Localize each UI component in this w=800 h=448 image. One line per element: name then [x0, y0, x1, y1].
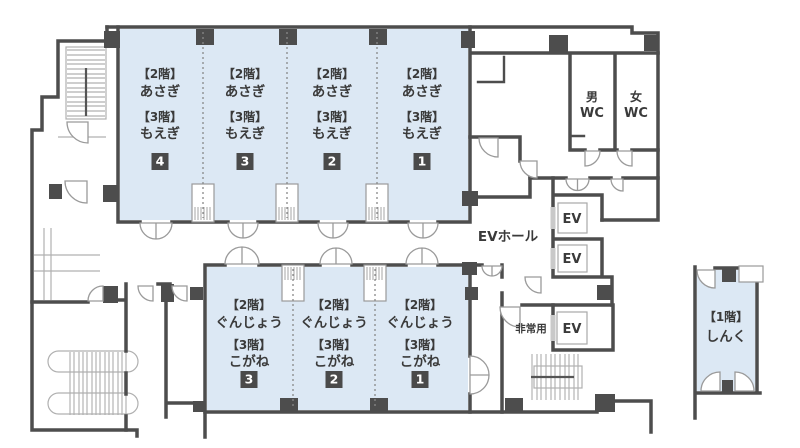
elevator-2-label: EV: [563, 252, 582, 267]
mens-wc-gender-label: 男: [586, 90, 598, 104]
floor2-room-name: あさぎ: [402, 83, 443, 100]
room-number: 3: [241, 154, 250, 169]
emergency-elevator-label: EV: [563, 322, 582, 337]
floor2-room-name: ぐんじょう: [386, 315, 454, 331]
floor2-label: 【2階】: [138, 66, 182, 81]
floor2-room-name: あさぎ: [140, 83, 181, 100]
floor2-label: 【2階】: [227, 297, 271, 312]
room-number: 1: [416, 372, 425, 387]
floor3-label: 【3階】: [400, 109, 444, 124]
floor3-room-name: もえぎ: [312, 125, 353, 142]
elevator-2-door: [551, 248, 556, 269]
ev-hall-label: EVホール: [478, 229, 539, 245]
floor3-label: 【3階】: [398, 337, 442, 352]
floor2-room-name: あさぎ: [312, 83, 353, 100]
floor3-label: 【3階】: [227, 337, 271, 352]
room-number: 1: [418, 154, 427, 169]
floor2-label: 【2階】: [312, 297, 356, 312]
floor3-label: 【3階】: [138, 109, 182, 124]
floor3-room-name: こがね: [229, 353, 270, 370]
floor3-room-name: もえぎ: [402, 125, 443, 142]
room-number: 3: [245, 372, 254, 387]
womens-wc-label: WC: [624, 106, 648, 121]
floor2-label: 【2階】: [398, 297, 442, 312]
floor3-room-name: こがね: [400, 353, 441, 370]
floor3-room-name: もえぎ: [140, 125, 181, 142]
room-number: 2: [328, 154, 337, 169]
womens-wc-gender-label: 女: [630, 89, 642, 104]
room-number: 4: [156, 154, 165, 169]
mens-wc-label: WC: [580, 106, 604, 121]
room-number: 2: [330, 372, 339, 387]
floor3-room-name: こがね: [314, 353, 355, 370]
emergency-staircase: [531, 354, 582, 400]
elevator-1-door: [551, 207, 556, 229]
elevator-1-label: EV: [563, 212, 582, 227]
floor2-room-name: ぐんじょう: [215, 315, 283, 331]
floor-plan-svg: 【2階】 あさぎ 【3階】 もえぎ 4 【2階】 あさぎ 【3階】 もえぎ 3 …: [0, 0, 800, 448]
floor3-label: 【3階】: [223, 109, 267, 124]
floor3-label: 【3階】: [312, 337, 356, 352]
emergency-label: 非常用: [515, 322, 547, 335]
floor1-room-name: しんく: [706, 329, 747, 345]
floor2-room-name: あさぎ: [225, 83, 266, 100]
floor-plan-page: 【2階】 あさぎ 【3階】 もえぎ 4 【2階】 あさぎ 【3階】 もえぎ 3 …: [0, 0, 800, 448]
emergency-elevator-door: [551, 315, 556, 341]
corridor-overhead-lines: [34, 228, 100, 300]
annex-duct: [739, 266, 763, 282]
floor3-label: 【3階】: [310, 109, 354, 124]
floor1-label: 【1階】: [704, 309, 748, 324]
floor3-room-name: もえぎ: [225, 125, 266, 142]
floor2-label: 【2階】: [223, 66, 267, 81]
floor2-label: 【2階】: [310, 66, 354, 81]
floor2-label: 【2階】: [400, 66, 444, 81]
floor2-room-name: ぐんじょう: [300, 315, 368, 331]
